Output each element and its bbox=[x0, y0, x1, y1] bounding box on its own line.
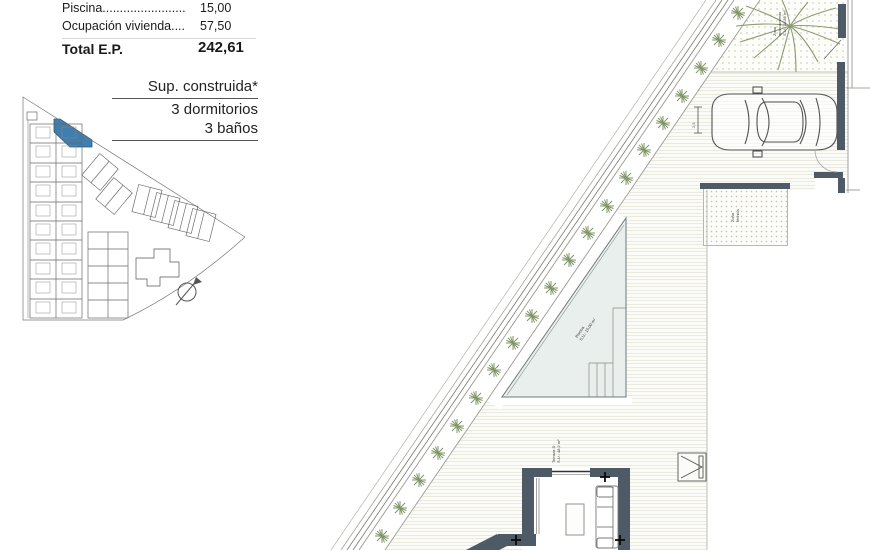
technical-zone-label: Zona técnica bbox=[730, 209, 740, 222]
bathrooms-line: 3 baños bbox=[112, 119, 258, 138]
table-row-total: Total E.P. 242,61 bbox=[62, 38, 256, 61]
gate-swing-arc bbox=[815, 150, 837, 172]
floorplan-page: { "summary_table": { "rows": [ {"label":… bbox=[0, 0, 870, 550]
living-room bbox=[462, 468, 630, 550]
car-icon bbox=[712, 87, 837, 157]
deck-hatch-icon bbox=[678, 453, 706, 481]
row-value: 15,00 bbox=[200, 1, 231, 15]
dimension-marks bbox=[694, 107, 702, 133]
row-value: 57,50 bbox=[200, 19, 231, 33]
gate-leaf bbox=[824, 40, 841, 59]
sofa-icon bbox=[596, 486, 618, 548]
row-value: 242,61 bbox=[198, 39, 244, 56]
row-label: Piscina........................ bbox=[62, 1, 186, 15]
plot-edge-lines bbox=[846, 0, 870, 193]
site-building-footprint bbox=[136, 249, 179, 286]
row-label: Ocupación vivienda.... bbox=[62, 19, 185, 33]
table-row: Ocupación vivienda.... 57,50 bbox=[62, 19, 256, 37]
terrace-label: Terraza D S.U.: 48,2 m² bbox=[551, 439, 561, 463]
table-row: Piscina........................ 15,00 bbox=[62, 1, 256, 19]
bedrooms-line: 3 dormitorios bbox=[112, 100, 258, 119]
site-left-block bbox=[30, 124, 82, 318]
summary-table: Piscina........................ 15,00 Oc… bbox=[62, 1, 256, 61]
unit-info-block: Sup. construida* 3 dormitorios 3 baños bbox=[112, 77, 258, 141]
divider-rule bbox=[112, 140, 258, 141]
car-dimension-label: 2,5 bbox=[691, 122, 696, 128]
coffee-table-icon bbox=[566, 504, 584, 535]
site-middle-block bbox=[88, 232, 128, 318]
site-clusters bbox=[82, 154, 216, 242]
row-label: Total E.P. bbox=[62, 41, 123, 57]
built-surface-title: Sup. construida* bbox=[112, 77, 258, 99]
pool-shape bbox=[502, 218, 626, 397]
parking-zone-label: Zona aparcamiento S.U.: 18,85 m² bbox=[772, 10, 787, 36]
